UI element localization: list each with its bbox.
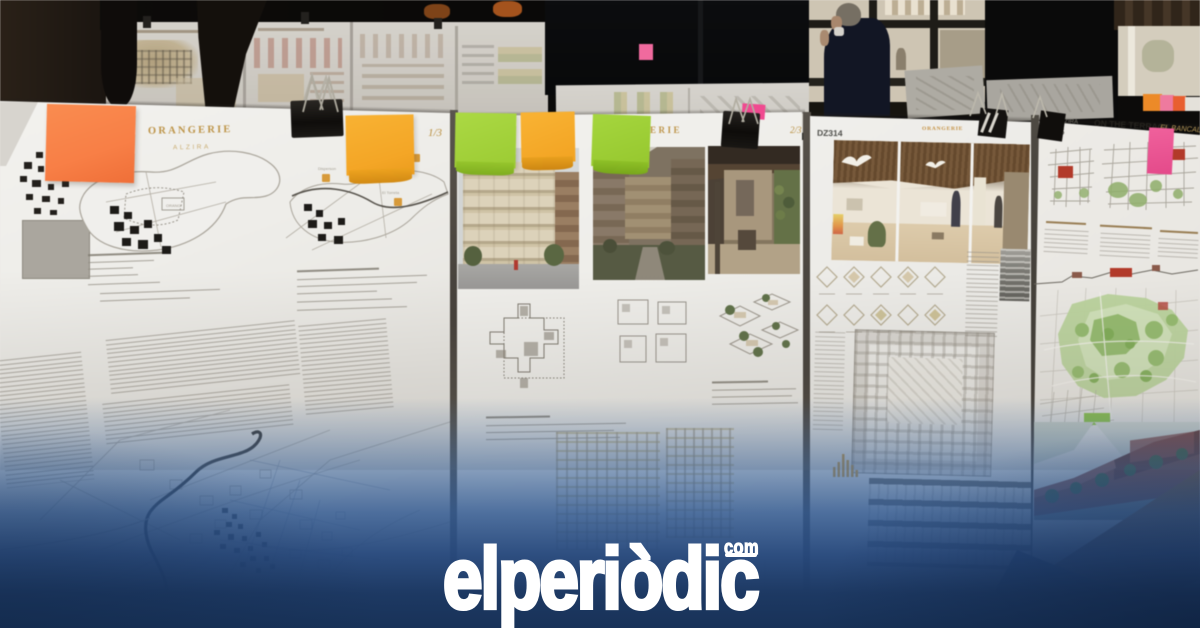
svg-text:ORANG: ORANG xyxy=(166,203,181,208)
svg-text:El Torreta: El Torreta xyxy=(382,190,400,195)
svg-text:Disperson: Disperson xyxy=(318,166,336,171)
